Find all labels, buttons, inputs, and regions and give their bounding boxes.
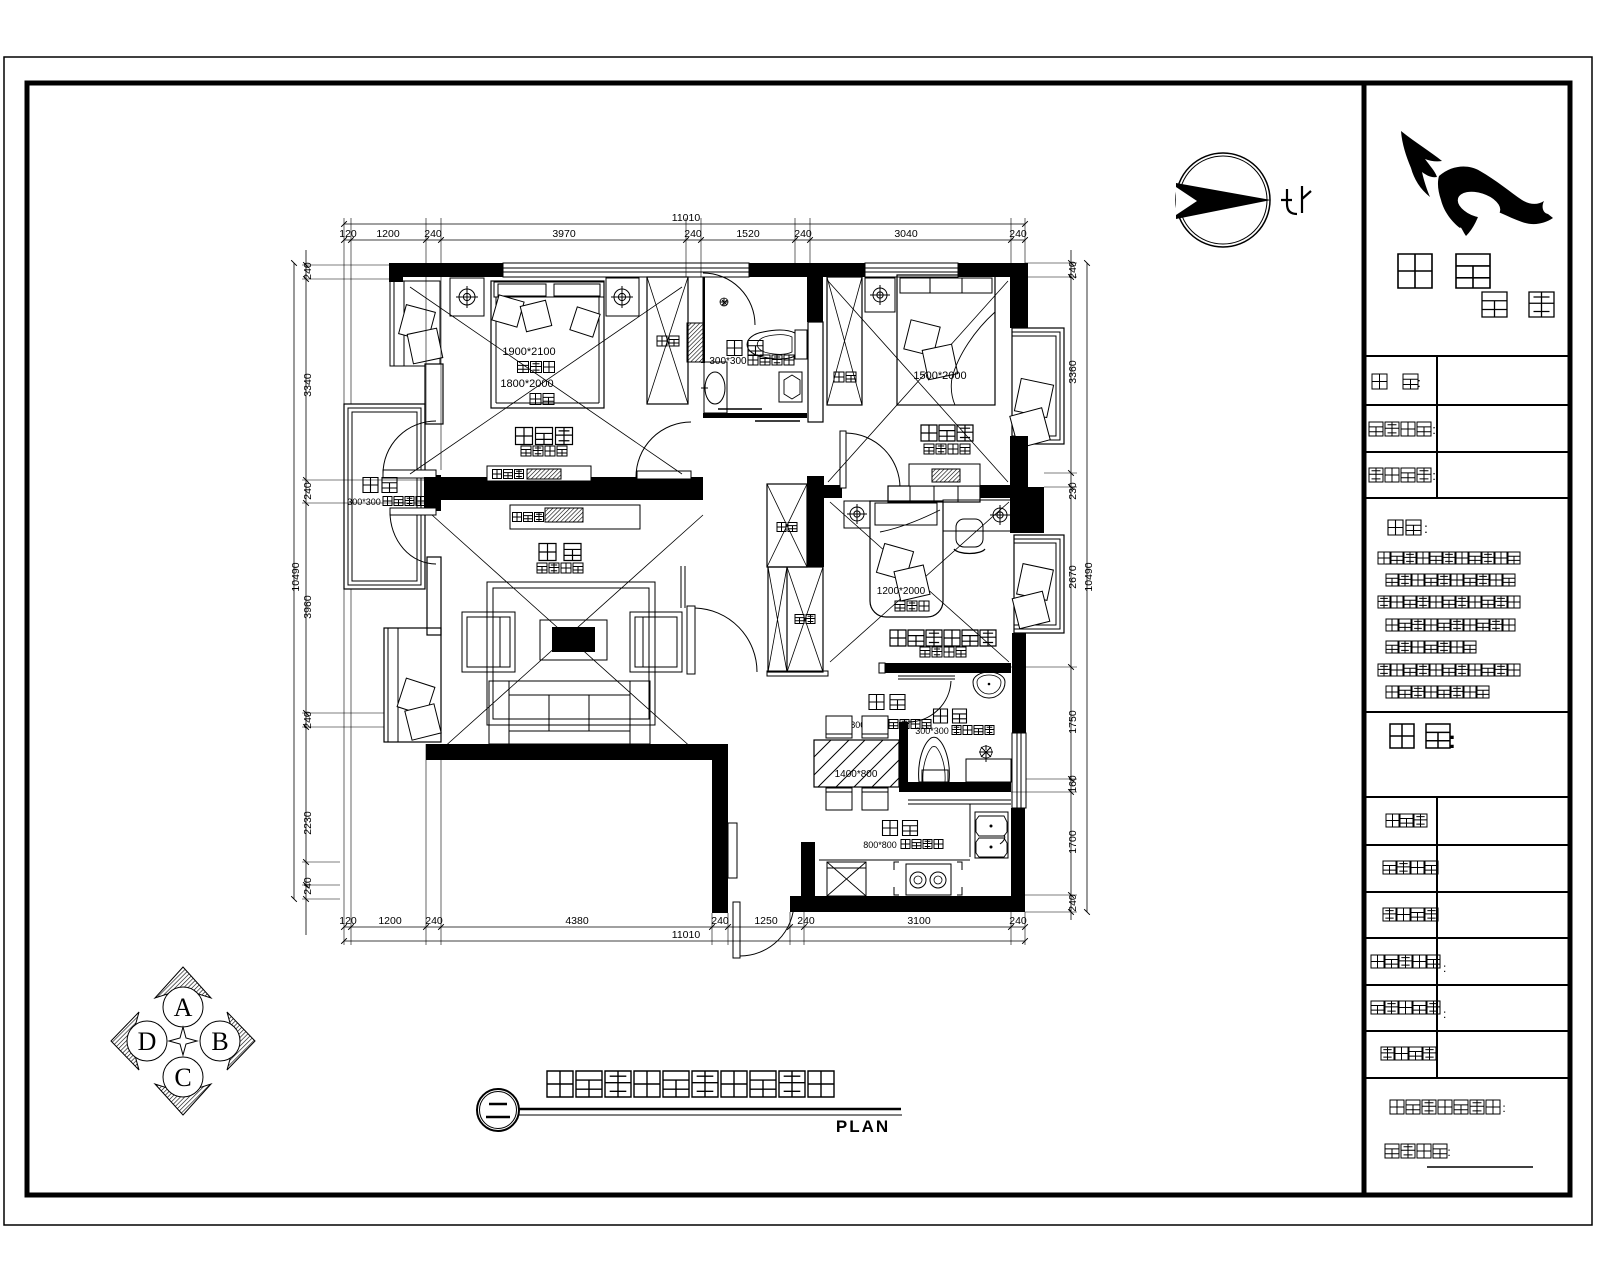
- svg-text:PLAN: PLAN: [836, 1117, 890, 1136]
- svg-text:A: A: [174, 993, 193, 1022]
- svg-text:3340: 3340: [302, 373, 314, 397]
- svg-text:4380: 4380: [565, 915, 589, 927]
- svg-text:1250: 1250: [754, 915, 778, 927]
- svg-text:3960: 3960: [302, 595, 314, 619]
- svg-text:240: 240: [425, 915, 443, 927]
- svg-text:C: C: [174, 1063, 191, 1092]
- svg-text:230: 230: [1067, 482, 1079, 500]
- svg-text:120: 120: [339, 915, 357, 927]
- svg-text:1200*2000: 1200*2000: [877, 586, 926, 597]
- svg-text:1700: 1700: [1067, 830, 1079, 854]
- svg-text:1520: 1520: [736, 228, 760, 240]
- svg-text::: :: [1432, 422, 1436, 437]
- svg-text:120: 120: [339, 228, 357, 240]
- svg-text:1900*2100: 1900*2100: [502, 346, 555, 358]
- svg-text:3360: 3360: [1067, 360, 1079, 384]
- svg-text::: :: [1417, 375, 1421, 390]
- svg-text::: :: [1447, 1145, 1450, 1159]
- svg-text:2230: 2230: [302, 811, 314, 835]
- svg-text:240: 240: [302, 877, 314, 895]
- svg-text:240: 240: [1009, 915, 1027, 927]
- svg-text:240: 240: [794, 228, 812, 240]
- svg-text:D: D: [138, 1027, 157, 1056]
- svg-text:B: B: [211, 1027, 228, 1056]
- svg-text:3040: 3040: [894, 228, 918, 240]
- svg-text:240: 240: [711, 915, 729, 927]
- svg-text:240: 240: [424, 228, 442, 240]
- svg-text:1750: 1750: [1067, 710, 1079, 734]
- svg-text:1500*2000: 1500*2000: [913, 370, 966, 382]
- svg-text:1800*2000: 1800*2000: [500, 378, 553, 390]
- svg-text:240: 240: [1067, 894, 1079, 912]
- svg-text:240: 240: [684, 228, 702, 240]
- svg-text:240: 240: [797, 915, 815, 927]
- svg-text:10490: 10490: [290, 562, 302, 591]
- svg-text:11010: 11010: [672, 929, 701, 941]
- svg-text:2670: 2670: [1067, 565, 1079, 589]
- svg-text::: :: [1448, 727, 1456, 754]
- svg-text:800*800: 800*800: [863, 840, 897, 850]
- svg-text::: :: [1502, 1101, 1505, 1115]
- svg-text:300*300: 300*300: [347, 497, 381, 507]
- svg-text:10490: 10490: [1083, 562, 1095, 591]
- svg-text:1200: 1200: [376, 228, 400, 240]
- svg-text:1400*800: 1400*800: [835, 769, 878, 780]
- svg-text::: :: [1424, 520, 1428, 536]
- svg-text:3970: 3970: [552, 228, 576, 240]
- svg-text:240: 240: [302, 711, 314, 729]
- svg-text::: :: [1432, 468, 1436, 483]
- svg-text:240: 240: [1009, 228, 1027, 240]
- svg-text::: :: [1443, 961, 1446, 975]
- svg-text:240: 240: [302, 482, 314, 500]
- svg-text:160: 160: [1067, 775, 1079, 793]
- svg-text::: :: [1443, 1007, 1446, 1021]
- svg-text:3100: 3100: [907, 915, 931, 927]
- svg-text:1200: 1200: [378, 915, 402, 927]
- svg-text:240: 240: [1067, 261, 1079, 279]
